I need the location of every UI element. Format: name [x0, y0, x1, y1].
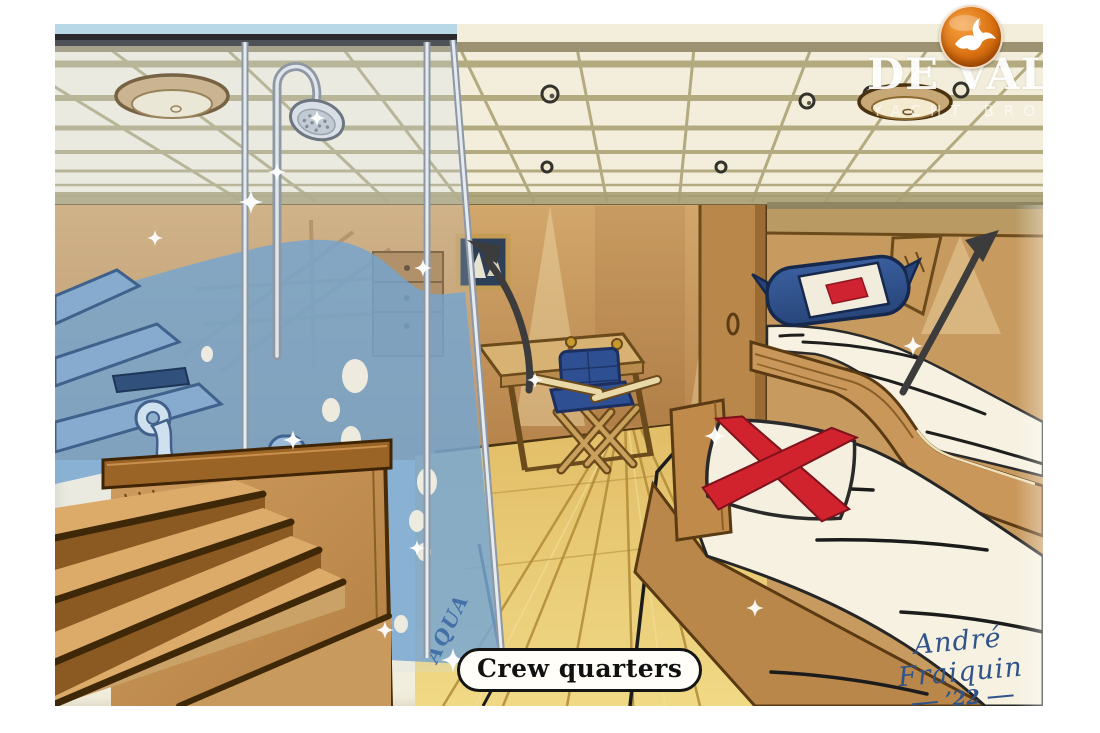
staircase — [55, 440, 391, 706]
signature-year: ’22 — [944, 684, 981, 706]
crew-quarters-illustration: AQUA — [55, 24, 1043, 706]
illustration-page: AQUA — [0, 0, 1100, 733]
brand-badge — [939, 5, 1003, 69]
seagull-icon — [941, 7, 1001, 67]
signature-dash-left — [911, 701, 937, 705]
glass-top-edge — [55, 24, 457, 34]
signature-dash-right — [988, 694, 1014, 698]
brand-tagline: YACHT BROKERS — [873, 102, 1043, 120]
caption-label: Crew quarters — [457, 648, 702, 692]
lower-bunk-pillow — [701, 413, 858, 524]
illustration-canvas: AQUA — [55, 24, 1043, 706]
